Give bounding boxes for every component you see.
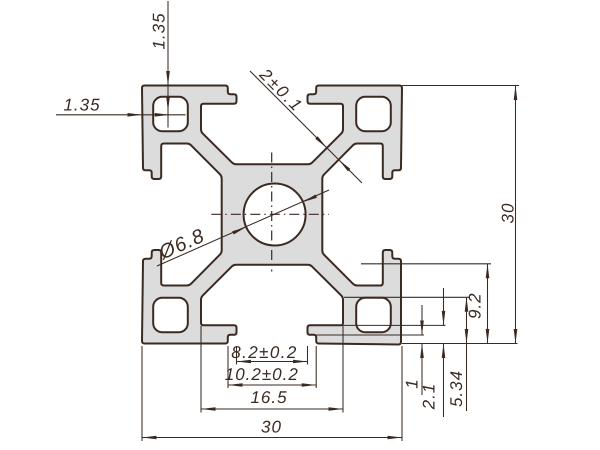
svg-text:9.2: 9.2 — [466, 292, 485, 319]
svg-text:5.34: 5.34 — [447, 370, 466, 407]
svg-text:30: 30 — [261, 417, 282, 436]
svg-text:Ø6.8: Ø6.8 — [155, 225, 208, 265]
svg-text:8.2±0.2: 8.2±0.2 — [231, 343, 297, 362]
svg-text:2±0.1: 2±0.1 — [255, 64, 307, 116]
svg-text:16.5: 16.5 — [250, 388, 287, 407]
svg-text:1.35: 1.35 — [63, 96, 100, 115]
svg-text:30: 30 — [499, 203, 518, 224]
svg-text:1.35: 1.35 — [150, 12, 169, 49]
svg-text:10.2±0.2: 10.2±0.2 — [225, 365, 299, 384]
svg-text:2.1: 2.1 — [420, 383, 439, 411]
